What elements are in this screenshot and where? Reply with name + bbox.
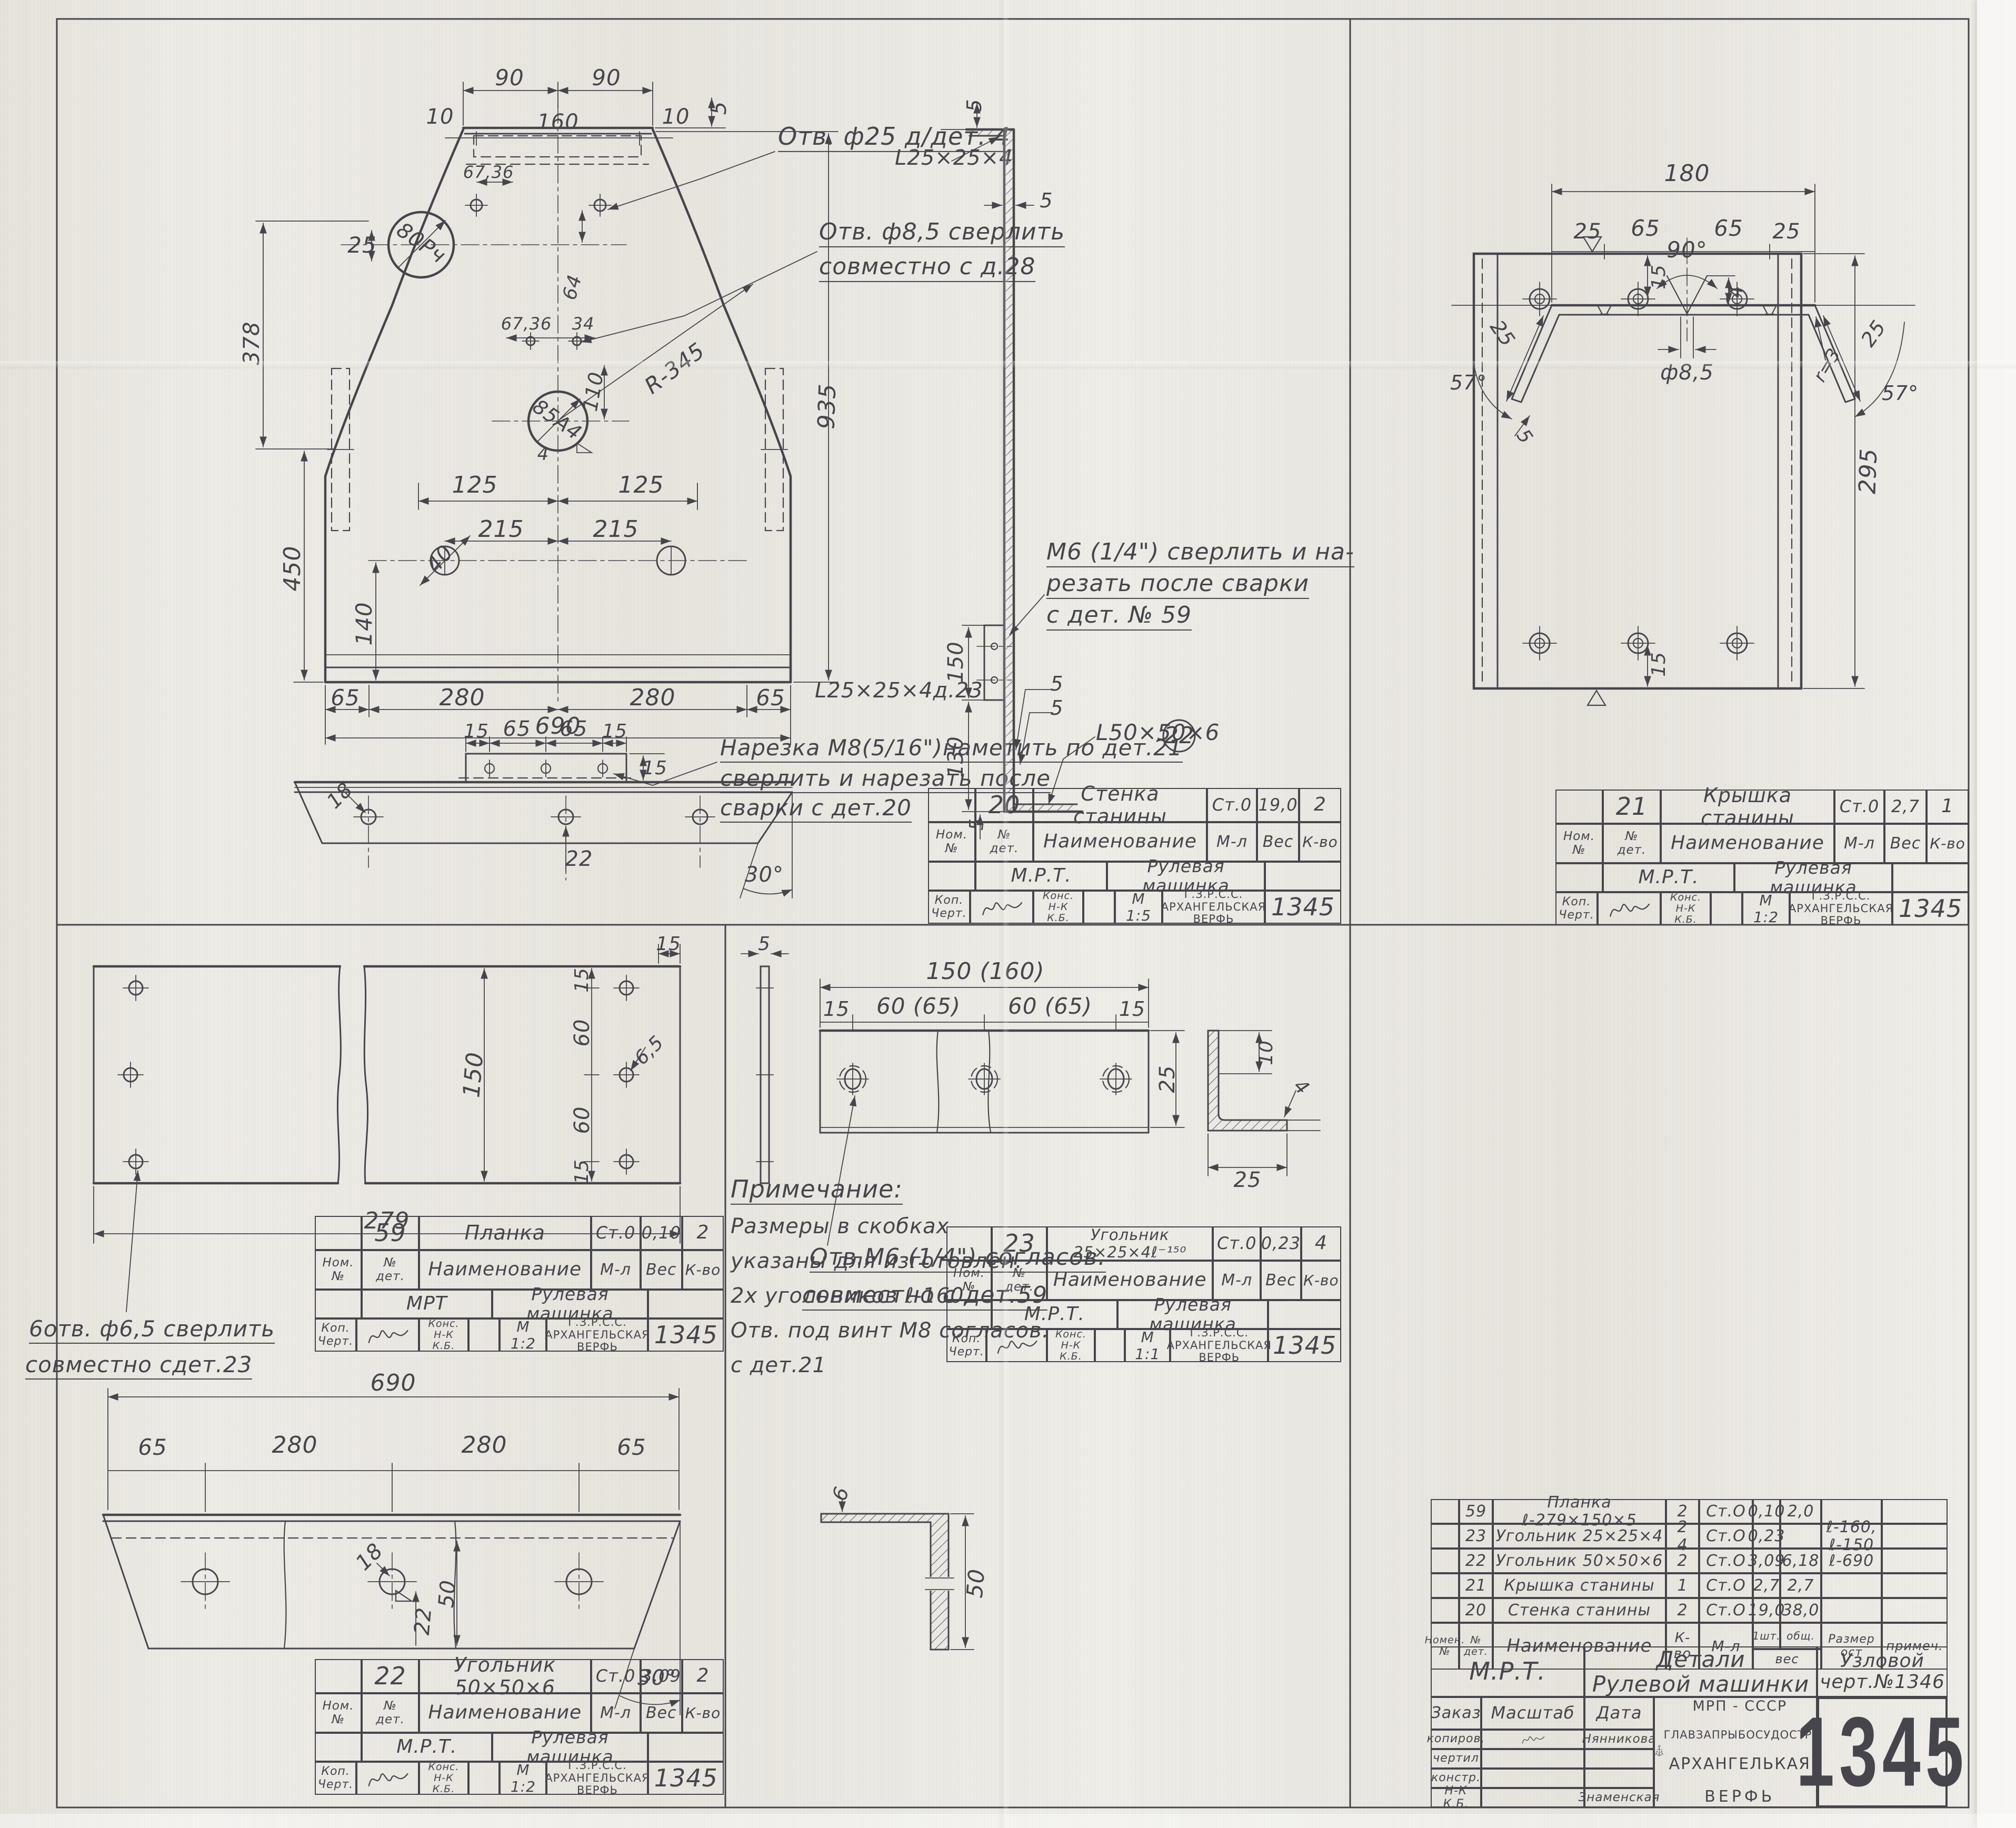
dim-label: резать после сварки <box>1046 572 1309 599</box>
stamp-cell <box>1555 863 1603 892</box>
dim-label: 180 <box>1664 162 1710 186</box>
main-title-scale-header: Масштаб <box>1481 1697 1584 1730</box>
dim-label: 140 <box>353 602 376 645</box>
parts-row-cell: Ст.О <box>1699 1573 1753 1598</box>
dim-label: 15 <box>823 999 850 1020</box>
stamp-cell <box>946 1300 992 1329</box>
dim-label: 22 <box>565 848 593 870</box>
parts-row-cell <box>1882 1499 1948 1524</box>
sig-row-label: чертил <box>1431 1749 1481 1769</box>
stamp-detail-number: 20 <box>975 788 1033 822</box>
dim-label: 57° <box>1882 383 1919 404</box>
stamp-signature <box>356 1318 419 1352</box>
dim-label: сварки с дет.20 <box>720 796 912 823</box>
dim-label: совместно сдет.23 <box>25 1353 252 1380</box>
stamp-cell <box>1083 891 1115 924</box>
stamp-org: М.Р.Т. <box>1603 863 1734 892</box>
blueprint-sheet: 909010160105Отв. ф25 д/дет. 4Отв. ф8,5 с… <box>0 0 2016 1828</box>
sheet-number-large: 1345 <box>1796 1697 1968 1807</box>
stamp-cell: К-во <box>682 1693 724 1733</box>
dim-label: 130 <box>945 736 967 777</box>
parts-row-cell: Угольник 25×25×4 <box>1493 1524 1666 1549</box>
main-title-project: М.Р.Т. <box>1431 1646 1584 1697</box>
parts-row-cell <box>1431 1549 1459 1573</box>
dim-label: 280 <box>272 1433 318 1457</box>
sig-row-date: Знаменская <box>1584 1788 1654 1807</box>
stamp-material: Ст.0 <box>1213 1226 1261 1261</box>
parts-row-cell: 38,0 <box>1780 1598 1821 1623</box>
sig-row-signature <box>1481 1730 1584 1749</box>
parts-row-cell: 6,18 <box>1780 1549 1821 1573</box>
parts-row-cell: 2 <box>1666 1598 1699 1623</box>
dim-label: 10 <box>1256 1040 1276 1065</box>
dim-label: 280 <box>462 1433 507 1457</box>
stamp-product: Рулевая машинка <box>1117 1300 1269 1329</box>
stamp-cell: Конс. Н-К К.Б. <box>1661 892 1711 925</box>
stamp-number: 1345 <box>1265 891 1341 924</box>
detail-20-edge-view <box>295 737 792 898</box>
stamp-product: Рулевая машинка <box>492 1290 648 1318</box>
sheet-number-cell: 1345 <box>1817 1697 1948 1807</box>
stamp-detail-name: Угольник 25×25×4ℓ⁻¹⁵⁰ <box>1047 1226 1213 1261</box>
stamp-cell: № дет. <box>362 1250 419 1290</box>
dim-label: 450 <box>281 546 305 592</box>
dim-label: 60 (65) <box>876 995 961 1018</box>
stamp-product: Рулевая машинка <box>492 1733 648 1762</box>
stamp-product: Рулевая машинка <box>1734 863 1892 892</box>
stamp-cell <box>928 788 975 822</box>
stamp-cell <box>648 1733 724 1762</box>
stamp-product: Рулевая машинка <box>1107 862 1265 891</box>
stamp-cell <box>468 1318 500 1352</box>
dim-label: 30° <box>745 864 784 886</box>
sig-row-date <box>1584 1749 1654 1769</box>
stamp-scale: М 1:1 <box>1125 1329 1170 1362</box>
shipyard-anchor-logo: А С В <box>1655 1708 1664 1796</box>
stamp-signature <box>986 1329 1047 1362</box>
parts-row-cell: 22 <box>1459 1549 1493 1573</box>
stamp-detail-name: Угольник 50×50×6 <box>419 1659 591 1693</box>
parts-row-cell <box>1431 1573 1459 1598</box>
dim-label: 50 <box>435 1579 460 1609</box>
dim-label: 378 <box>240 321 263 365</box>
stamp-scale: М 1:2 <box>500 1318 546 1352</box>
dim-label: 10 <box>426 106 454 128</box>
stamp-yard: Г.З.Р.С.С. АРХАНГЕЛЬСКАЯ ВЕРФЬ <box>546 1318 648 1352</box>
logo-letter-a: А <box>1655 1751 1658 1754</box>
stamp-weight: 0,23 <box>1261 1226 1301 1261</box>
dim-label: 22 <box>411 1606 435 1636</box>
dim-label: 25 <box>1574 221 1602 243</box>
stamp-detail-name: Крышка станины <box>1661 790 1834 824</box>
sig-row-date <box>1584 1769 1654 1788</box>
dim-label: 34 <box>572 315 595 333</box>
stamp-detail-number: 21 <box>1603 790 1661 824</box>
sig-row-signature <box>1481 1769 1584 1788</box>
stamp-material: Ст.0 <box>591 1659 641 1693</box>
stamp-number: 1345 <box>648 1318 724 1352</box>
dim-label: L50×50×6 <box>1096 721 1220 744</box>
stamp-cell: К-во <box>1927 824 1969 863</box>
parts-row-cell: Ст.О <box>1699 1598 1753 1623</box>
parts-row-cell: 2,7 <box>1780 1573 1821 1598</box>
parts-row-cell <box>1431 1598 1459 1623</box>
stamp-number: 1345 <box>1892 892 1969 925</box>
org-line-glavk: ГЛАВЗАПРЫБОСУДОСТР. <box>1664 1727 1816 1742</box>
stamp-cell: Ном. № <box>946 1261 992 1300</box>
stamp-cell <box>648 1290 724 1318</box>
stamp-cell <box>315 1659 362 1693</box>
stamp-yard: Г.З.Р.С.С. АРХАНГЕЛЬСКАЯ ВЕРФЬ <box>1170 1329 1268 1362</box>
stamp-detail-number: 23 <box>992 1226 1047 1261</box>
dim-label: 150 <box>945 641 967 683</box>
stamp-cell: Коп. Черт. <box>315 1318 356 1352</box>
stamp-signature <box>356 1762 419 1795</box>
stamp-cell <box>1095 1329 1125 1362</box>
parts-row-cell <box>1882 1573 1948 1598</box>
stamp-cell: Конс. Н-К К.Б. <box>419 1318 468 1352</box>
dim-label: 15 <box>602 722 627 742</box>
dim-label: 65 <box>138 1436 167 1459</box>
parts-row-cell: 2,0 <box>1780 1499 1821 1524</box>
dim-label: 90° <box>1666 238 1707 262</box>
stamp-cell <box>1892 863 1969 892</box>
dim-label: 10 <box>662 106 690 128</box>
stamp-cell: № дет. <box>975 822 1033 862</box>
dim-label: 15 <box>464 722 489 742</box>
sig-row-label: Н-К К.Б. <box>1431 1788 1481 1807</box>
parts-row-cell <box>1882 1524 1948 1549</box>
dim-label: 690 <box>371 1371 416 1395</box>
stamp-cell: К-во <box>1299 822 1341 862</box>
dim-label: 65 <box>560 718 588 740</box>
stamp-cell: Вес <box>1884 824 1927 863</box>
stamp-cell <box>946 1226 992 1261</box>
parts-row-cell: 0,10 <box>1753 1499 1780 1524</box>
parts-row-cell: 3,09 <box>1753 1549 1780 1573</box>
dim-label: 4 <box>537 445 550 464</box>
dim-label: 15 <box>642 758 667 778</box>
stamp-cell: К-во <box>682 1250 724 1290</box>
sig-row-date: Нянникова <box>1584 1730 1654 1749</box>
stamp-org: МРТ <box>362 1290 492 1318</box>
stamp-cell: Ном. № <box>1555 824 1603 863</box>
stamp-cell: Коп. Черт. <box>946 1329 986 1362</box>
stamp-cell <box>1555 790 1603 824</box>
parts-row-cell: Ст.О <box>1699 1549 1753 1573</box>
stamp-number: 1345 <box>648 1762 724 1795</box>
stamp-cell: № дет. <box>362 1693 419 1733</box>
stamp-cell <box>315 1733 362 1762</box>
stamp-quantity: 2 <box>1299 788 1341 822</box>
dim-label: 935 <box>814 383 840 430</box>
stamp-org: М.Р.Т. <box>992 1300 1117 1329</box>
dim-label: 215 <box>478 517 524 542</box>
stamp-weight: 0,10 <box>641 1216 682 1250</box>
org-line-ministry: МРП - СССР <box>1664 1697 1816 1716</box>
dim-label: ф8,5 <box>1660 362 1714 384</box>
stamp-material: Ст.0 <box>591 1216 641 1250</box>
dim-label: 57° <box>1450 373 1487 394</box>
parts-row-cell: Планка ℓ-279×150×5 <box>1493 1499 1666 1524</box>
stamp-quantity: 2 <box>682 1659 724 1693</box>
dim-label: с дет.21 <box>731 1354 826 1376</box>
dim-label: 5 <box>758 934 771 954</box>
dim-label: 60 <box>571 1106 593 1134</box>
sig-row-label: копиров. <box>1431 1730 1481 1749</box>
dim-label: 22 <box>1164 724 1194 748</box>
stamp-yard: Г.З.Р.С.С. АРХАНГЕЛЬСКАЯ ВЕРФЬ <box>1162 891 1265 924</box>
dim-label: 67,36 <box>463 164 514 182</box>
stamp-number: 1345 <box>1268 1329 1341 1362</box>
stamp-detail-number: 59 <box>362 1216 419 1250</box>
main-title-node-ref: Узловой черт.№1346 <box>1817 1646 1948 1697</box>
dim-label: 5 <box>1050 698 1063 719</box>
stamp-scale: М 1:2 <box>1742 892 1790 925</box>
parts-row-cell: ℓ-690 <box>1821 1549 1882 1573</box>
parts-row-cell: 19,0 <box>1753 1598 1780 1623</box>
dim-label: 4 <box>1726 285 1746 298</box>
stamp-weight: 19,0 <box>1257 788 1299 822</box>
main-title-date-header: Дата <box>1584 1697 1654 1730</box>
stamp-scale: М 1:5 <box>1115 891 1162 924</box>
stamp-cell <box>315 1290 362 1318</box>
dim-label: 215 <box>593 517 639 542</box>
dim-label: 15 <box>1119 999 1145 1020</box>
stamp-cell: Конс. Н-К К.Б. <box>1047 1329 1095 1362</box>
parts-row-cell <box>1431 1524 1459 1549</box>
dim-label: 150 (160) <box>926 960 1044 984</box>
stamp-weight: 3,09 <box>641 1659 682 1693</box>
stamp-material: Ст.0 <box>1834 790 1884 824</box>
parts-row-cell: Ст.О <box>1699 1499 1753 1524</box>
parts-row-cell: Ст.О <box>1699 1524 1753 1549</box>
stamp-cell: № дет. <box>1603 824 1661 863</box>
dim-label: 15 <box>1649 264 1669 289</box>
dim-label: 67,36 <box>501 315 552 333</box>
parts-row-cell <box>1780 1524 1821 1549</box>
stamp-cell: Коп. Черт. <box>1555 892 1598 925</box>
parts-row-cell: 2 <box>1666 1549 1699 1573</box>
stamp-detail-name: Планка <box>419 1216 591 1250</box>
parts-row-cell: ℓ-160, ℓ-150 <box>1821 1524 1882 1549</box>
dim-label: с дет. № 59 <box>1046 603 1192 631</box>
dim-label: 50 <box>963 1567 989 1599</box>
dim-label: совместно с д.28 <box>819 255 1035 282</box>
parts-row-cell <box>1882 1598 1948 1623</box>
stamp-detail-number: 22 <box>362 1659 419 1693</box>
stamp-signature <box>970 891 1033 924</box>
dim-label: 15 <box>572 967 592 993</box>
stamp-cell <box>468 1762 500 1795</box>
dim-label: Примечание: <box>731 1176 903 1205</box>
dim-label: 15 <box>572 1159 592 1184</box>
parts-row-cell: 0,23 <box>1753 1524 1780 1549</box>
parts-row-cell: 2 4 <box>1666 1524 1699 1549</box>
sig-row-signature <box>1481 1749 1584 1769</box>
stamp-org: М.Р.Т. <box>975 862 1107 891</box>
dim-label: 280 <box>440 686 485 710</box>
dim-label: 295 <box>1855 448 1881 495</box>
stamp-cell: № дет. <box>992 1261 1047 1300</box>
dim-label: Отв. ф8,5 сверлить <box>819 220 1065 247</box>
dim-label: 125 <box>618 473 664 497</box>
dim-label: 65 <box>1631 217 1660 240</box>
sig-row-signature <box>1481 1788 1584 1807</box>
dim-label: 2х угольников ℓ-160, <box>731 1285 971 1307</box>
dim-label: 15 <box>1649 652 1669 677</box>
stamp-quantity: 1 <box>1927 790 1969 824</box>
parts-row-cell: Угольник 50×50×6 <box>1493 1549 1666 1573</box>
dim-label: 90 <box>495 66 524 89</box>
stamp-signature <box>1598 892 1661 925</box>
parts-row-cell: 23 <box>1459 1524 1493 1549</box>
dim-label: 25 <box>1234 1169 1262 1191</box>
stamp-cell <box>928 862 975 891</box>
parts-row-cell: 21 <box>1459 1573 1493 1598</box>
stamp-cell <box>1268 1300 1341 1329</box>
dim-label: 5 <box>964 98 985 112</box>
dim-label: 15 <box>656 934 681 954</box>
detail-21-plan-view <box>1474 237 1864 705</box>
dim-label: 160 <box>537 111 578 133</box>
main-title-order-header: Заказ <box>1431 1697 1481 1730</box>
stamp-cell: Ном. № <box>315 1250 362 1290</box>
dim-label: Размеры в скобках <box>731 1215 949 1237</box>
org-line-verf: ВЕРФЬ <box>1664 1786 1816 1808</box>
stamp-cell: К-во <box>1301 1261 1341 1300</box>
stamp-scale: М 1:2 <box>500 1762 546 1795</box>
stamp-cell: Коп. Черт. <box>315 1762 356 1795</box>
dim-label: 65 <box>617 1436 646 1459</box>
dim-label: 90 <box>592 66 621 89</box>
parts-row-cell: 59 <box>1459 1499 1493 1524</box>
dim-label: 5 <box>708 101 730 115</box>
stamp-yard: Г.З.Р.С.С. АРХАНГЕЛЬСКАЯ ВЕРФЬ <box>546 1762 648 1795</box>
parts-row-cell: 1 <box>1666 1573 1699 1598</box>
stamp-material: Ст.0 <box>1207 788 1257 822</box>
dim-label: 60 (65) <box>1008 995 1092 1018</box>
stamp-cell <box>1265 862 1341 891</box>
stamp-cell: Ном. № <box>928 822 975 862</box>
dim-label: 280 <box>630 686 676 710</box>
stamp-cell: Конс. Н-К К.Б. <box>1033 891 1083 924</box>
stamp-cell: Конс. Н-К К.Б. <box>419 1762 468 1795</box>
parts-row-cell: Крышка станины <box>1493 1573 1666 1598</box>
dim-label: 60 <box>571 1019 593 1047</box>
stamp-cell <box>1711 892 1742 925</box>
stamp-cell: общ. <box>1780 1623 1821 1649</box>
dim-label: 65 <box>503 718 531 740</box>
org-logo-cell: А С В МРП - СССР ГЛАВЗАПРЫБОСУДОСТР. АРХ… <box>1654 1697 1817 1807</box>
dim-label: 25 <box>1773 221 1801 243</box>
parts-row-cell <box>1821 1573 1882 1598</box>
dim-label: М6 (1/4") сверлить и на- <box>1046 540 1354 567</box>
parts-row-cell: 2,7 <box>1753 1573 1780 1598</box>
logo-letter-v: В <box>1661 1751 1663 1754</box>
parts-row-cell <box>1431 1499 1459 1524</box>
parts-row-cell: Стенка станины <box>1493 1598 1666 1623</box>
dim-label: 65 <box>1714 217 1743 240</box>
stamp-cell <box>315 1216 362 1250</box>
stamp-quantity: 2 <box>682 1216 724 1250</box>
dim-label: 125 <box>452 473 498 497</box>
stamp-cell: Ном. № <box>315 1693 362 1733</box>
stamp-detail-name: Стенка станины <box>1033 788 1207 822</box>
stamp-org: М.Р.Т. <box>362 1733 492 1762</box>
dim-label: 25 <box>347 234 376 257</box>
parts-row-cell: 20 <box>1459 1598 1493 1623</box>
stamp-cell: Вес <box>641 1693 682 1733</box>
dim-label: L25×25×4 <box>895 147 1013 169</box>
dim-label: 65 <box>331 686 360 710</box>
org-line-yard: АРХАНГЕЛЬКАЯ <box>1664 1754 1816 1775</box>
dim-label: 25 <box>1156 1065 1179 1093</box>
stamp-cell: Вес <box>1257 822 1299 862</box>
parts-row-cell <box>1821 1598 1882 1623</box>
stamp-weight: 2,7 <box>1884 790 1927 824</box>
stamp-quantity: 4 <box>1301 1226 1341 1261</box>
stamp-cell: Вес <box>641 1250 682 1290</box>
dim-label: 150 <box>460 1051 488 1099</box>
dim-label: 5 <box>1050 674 1063 695</box>
stamp-cell: Коп. Черт. <box>928 891 970 924</box>
stamp-cell: 1шт. <box>1753 1623 1780 1649</box>
dim-label: 65 <box>756 686 785 710</box>
stamp-yard: Г.З.Р.С.С. АРХАНГЕЛЬСКАЯ ВЕРФЬ <box>1790 892 1892 925</box>
detail-21-profile-view <box>1452 184 1915 436</box>
stamp-cell: Вес <box>1261 1261 1301 1300</box>
dim-label: 5 <box>1040 191 1053 212</box>
parts-row-cell <box>1882 1549 1948 1573</box>
dim-label: 6отв. ф6,5 сверлить <box>29 1317 275 1344</box>
